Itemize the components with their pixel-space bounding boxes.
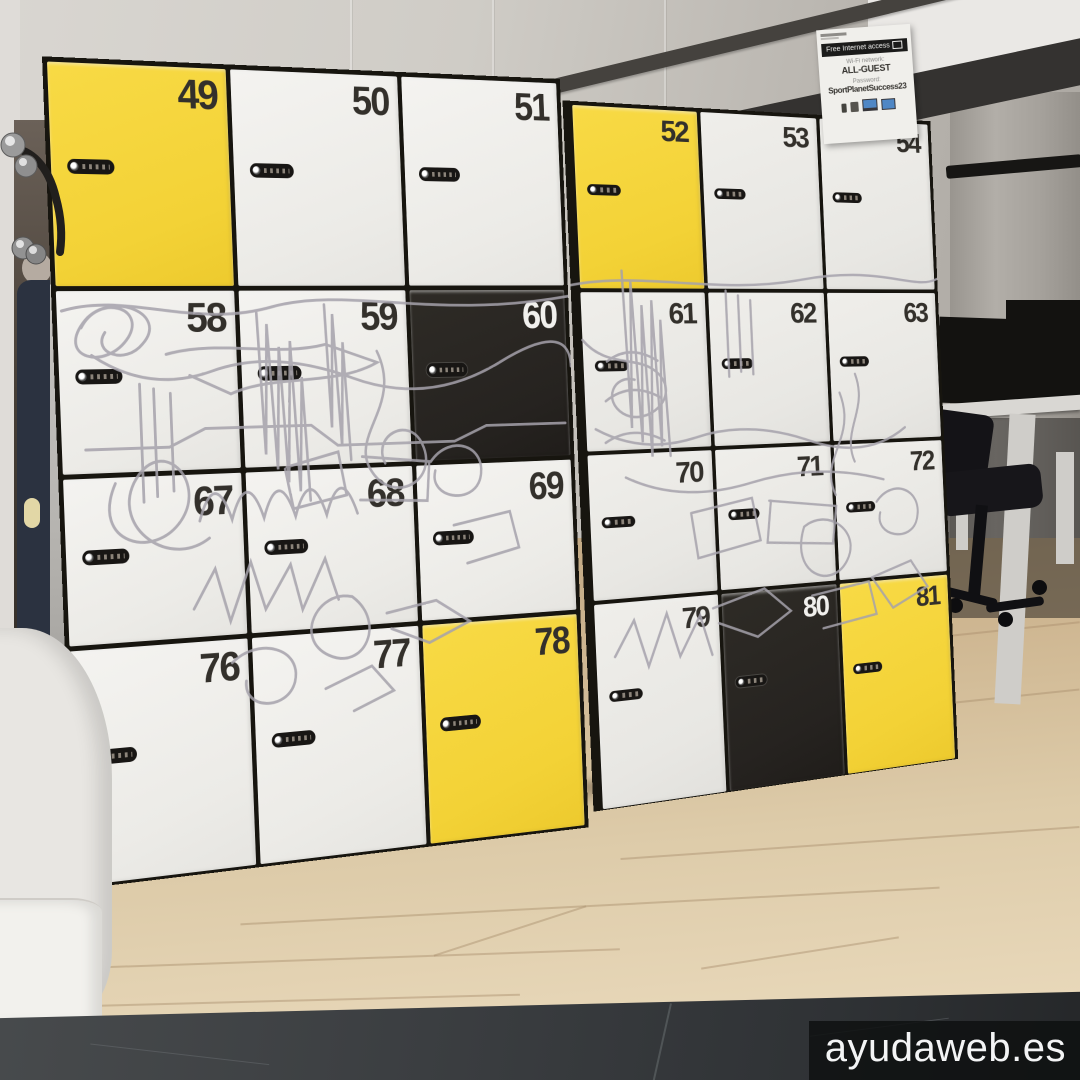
- locker-door-71: 71: [715, 445, 836, 590]
- combination-lock-icon: [736, 674, 767, 688]
- locker-room-photo: 495051585960676869767778 525354616263707…: [0, 0, 1080, 1080]
- locker-number: 80: [802, 589, 829, 625]
- locker-number: 70: [675, 454, 704, 490]
- desk-leg: [1056, 452, 1074, 564]
- combination-lock-icon: [722, 358, 754, 369]
- locker-door-63: 63: [827, 293, 941, 441]
- combination-lock-icon: [75, 369, 123, 385]
- locker-number: 51: [513, 85, 549, 131]
- locker-number: 79: [681, 599, 710, 636]
- locker-door-54: 54: [819, 119, 934, 290]
- monitor-icon: [892, 41, 903, 50]
- locker-door-79: 79: [594, 594, 726, 809]
- locker-door-69: 69: [416, 459, 576, 620]
- person-glove: [24, 498, 40, 528]
- locker-number: 72: [909, 444, 934, 478]
- locker-door-80: 80: [721, 584, 844, 791]
- combination-lock-icon: [609, 688, 643, 703]
- monitor-icon: [881, 98, 896, 110]
- laptop-icon: [862, 98, 878, 111]
- locker-door-51: 51: [401, 77, 564, 286]
- locker-number: 50: [351, 78, 390, 125]
- combination-lock-icon: [595, 360, 629, 371]
- tablet-icon: [850, 102, 859, 113]
- combination-lock-icon: [264, 538, 308, 555]
- monitor: [1006, 300, 1080, 402]
- tile-scratch: [90, 1043, 269, 1065]
- locker-number: 71: [796, 449, 823, 484]
- combination-lock-icon: [426, 363, 467, 378]
- device-icons: [825, 96, 912, 114]
- locker-door-62: 62: [708, 293, 830, 447]
- phone-icon: [841, 103, 847, 112]
- locker-number: 58: [185, 295, 226, 343]
- locker-number: 78: [534, 618, 570, 665]
- locker-number: 81: [915, 579, 940, 614]
- column-baseboard: [0, 898, 102, 1022]
- locker-door-78: 78: [422, 614, 585, 844]
- locker-number: 49: [177, 71, 218, 120]
- chair-wheel: [1032, 580, 1047, 595]
- locker-number: 68: [366, 470, 405, 517]
- watermark: ayudaweb.es: [809, 1021, 1080, 1080]
- locker-number: 76: [199, 643, 240, 694]
- locker-number: 52: [660, 114, 689, 150]
- locker-door-77: 77: [252, 626, 426, 865]
- combination-lock-icon: [433, 529, 474, 545]
- locker-number: 59: [359, 294, 398, 340]
- locker-number: 77: [372, 630, 410, 679]
- locker-door-58: 58: [56, 291, 241, 474]
- locker-number: 69: [528, 463, 564, 509]
- combination-lock-icon: [840, 356, 869, 367]
- combination-lock-icon: [714, 188, 746, 199]
- combination-lock-icon: [82, 548, 130, 565]
- combination-lock-icon: [833, 192, 863, 203]
- locker-number: 62: [789, 297, 816, 331]
- locker-door-81: 81: [840, 575, 955, 774]
- locker-door-53: 53: [700, 112, 823, 289]
- locker-cabinet-right: 525354616263707172798081: [562, 100, 958, 811]
- locker-number: 67: [192, 477, 233, 526]
- locker-number: 53: [782, 120, 809, 155]
- combination-lock-icon: [728, 508, 760, 520]
- locker-door-50: 50: [230, 69, 404, 286]
- locker-number: 63: [903, 297, 928, 330]
- combination-lock-icon: [846, 501, 875, 513]
- locker-door-70: 70: [587, 450, 717, 601]
- locker-door-67: 67: [63, 472, 248, 646]
- combination-lock-icon: [271, 730, 315, 748]
- chair-wheel: [998, 612, 1013, 627]
- combination-lock-icon: [257, 366, 301, 381]
- locker-door-59: 59: [239, 291, 412, 468]
- locker-door-68: 68: [246, 466, 418, 633]
- locker-number: 60: [521, 294, 557, 339]
- locker-door-52: 52: [572, 105, 704, 289]
- locker-door-61: 61: [580, 292, 711, 451]
- combination-lock-icon: [602, 515, 636, 528]
- wifi-sign: Free Internet access Wi-Fi network: ALL-…: [816, 24, 918, 144]
- combination-lock-icon: [440, 714, 481, 732]
- coat-rack: [0, 100, 120, 300]
- combination-lock-icon: [587, 184, 621, 196]
- combination-lock-icon: [853, 661, 882, 674]
- locker-door-72: 72: [834, 440, 947, 580]
- combination-lock-icon: [419, 167, 460, 182]
- locker-cabinet-left: 495051585960676869767778: [42, 56, 589, 889]
- tile-seam: [646, 1003, 672, 1080]
- combination-lock-icon: [249, 163, 293, 178]
- locker-door-60: 60: [409, 290, 570, 461]
- locker-number: 61: [668, 296, 697, 331]
